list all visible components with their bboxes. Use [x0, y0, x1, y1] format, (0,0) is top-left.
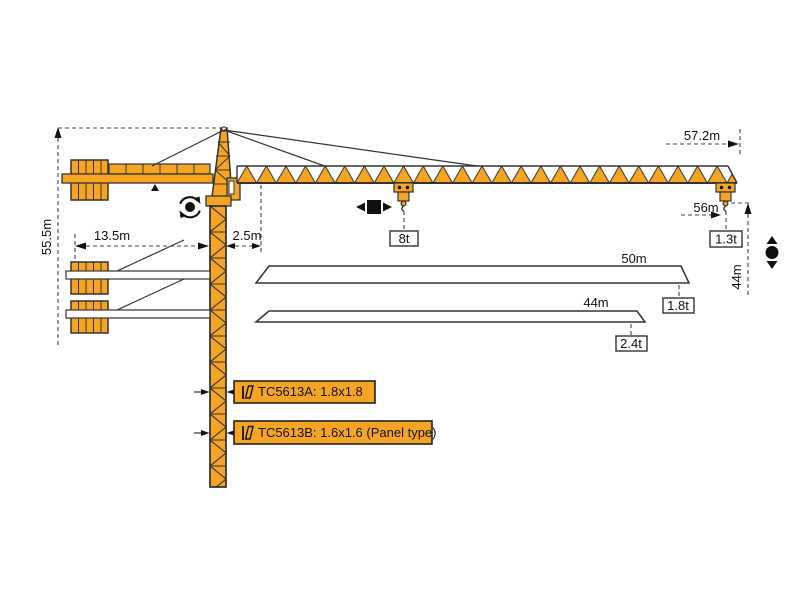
dimension-lift-height: 44m [724, 203, 752, 296]
hook-icon [401, 201, 406, 206]
tip-load-label: 1.3t [715, 232, 737, 247]
arrow-up-icon [55, 127, 62, 138]
cab-window [229, 181, 234, 194]
arrow-left-icon [227, 431, 235, 436]
mast [210, 206, 226, 487]
trolley-tip [716, 183, 735, 212]
max-capacity-label: 8t [399, 231, 410, 246]
rear-offset-label: 2.5m [233, 228, 262, 243]
counterweight-stack-1 [66, 240, 210, 294]
anchor-bar [66, 271, 210, 279]
leader-line [117, 279, 184, 310]
dimension-max-radius: 57.2m [666, 128, 740, 157]
mast-section-b-label: TC5613B: 1.6x1.6 (Panel type) [258, 425, 437, 440]
wheel-icon [720, 186, 723, 189]
arrow-up-icon [745, 203, 752, 214]
jib-variant-tip-load-label: 2.4t [620, 336, 642, 351]
marker-triangle-icon [151, 184, 159, 191]
crane-diagram: 55.5m 13.5m 2.5m 57.2m 56m 44m [0, 0, 800, 600]
jib [237, 166, 737, 183]
pendant-ties [152, 130, 484, 169]
counter-jib-beam [62, 174, 213, 183]
trolley-travel-icon [356, 200, 392, 214]
jib-variant-length-label: 50m [621, 251, 646, 266]
mast-section-a-label: TC5613A: 1.8x1.8 [258, 384, 363, 399]
leader-line [117, 240, 184, 271]
arrow-right-icon [201, 389, 210, 395]
jib-variant-50m: 50m 1.8t [256, 251, 694, 313]
lift-height-label: 44m [729, 264, 744, 289]
trolley-mid [394, 183, 413, 212]
crane-diagram-page: 55.5m 13.5m 2.5m 57.2m 56m 44m [0, 0, 800, 600]
jib-variant-bar [256, 311, 645, 322]
arrow-left-icon [227, 390, 235, 395]
arrow-right-icon [201, 430, 210, 436]
hoist-up-down-icon [766, 236, 779, 269]
jib-variant-44m: 44m 2.4t [256, 295, 647, 351]
max-capacity-callout: 8t [390, 211, 418, 246]
wheel-icon [728, 186, 731, 189]
hook-icon [723, 201, 728, 206]
wheel-icon [398, 186, 401, 189]
arrow-right-icon [728, 141, 739, 148]
jib-variant-tip-load-label: 1.8t [667, 298, 689, 313]
slew-rotation-icon [180, 197, 201, 219]
arrow-right-icon [198, 243, 209, 250]
mast-height-label: 55.5m [39, 219, 54, 255]
jib-variant-bar [256, 266, 689, 283]
mast-section-callout-b: TC5613B: 1.6x1.6 (Panel type) [194, 421, 437, 444]
arrow-left-icon [75, 243, 86, 250]
dimension-hook-radius: 56m [681, 200, 721, 219]
max-radius-label: 57.2m [684, 128, 720, 143]
arrow-left-icon [226, 243, 235, 249]
anchor-bar [66, 310, 210, 318]
hook-radius-label: 56m [693, 200, 718, 215]
counter-jib [62, 160, 213, 200]
jib-variant-length-label: 44m [583, 295, 608, 310]
counter-jib-radius-label: 13.5m [94, 228, 130, 243]
dimension-counter-jib: 13.5m [75, 228, 209, 259]
wheel-icon [406, 186, 409, 189]
turntable [206, 196, 231, 206]
arrow-right-icon [252, 243, 261, 249]
